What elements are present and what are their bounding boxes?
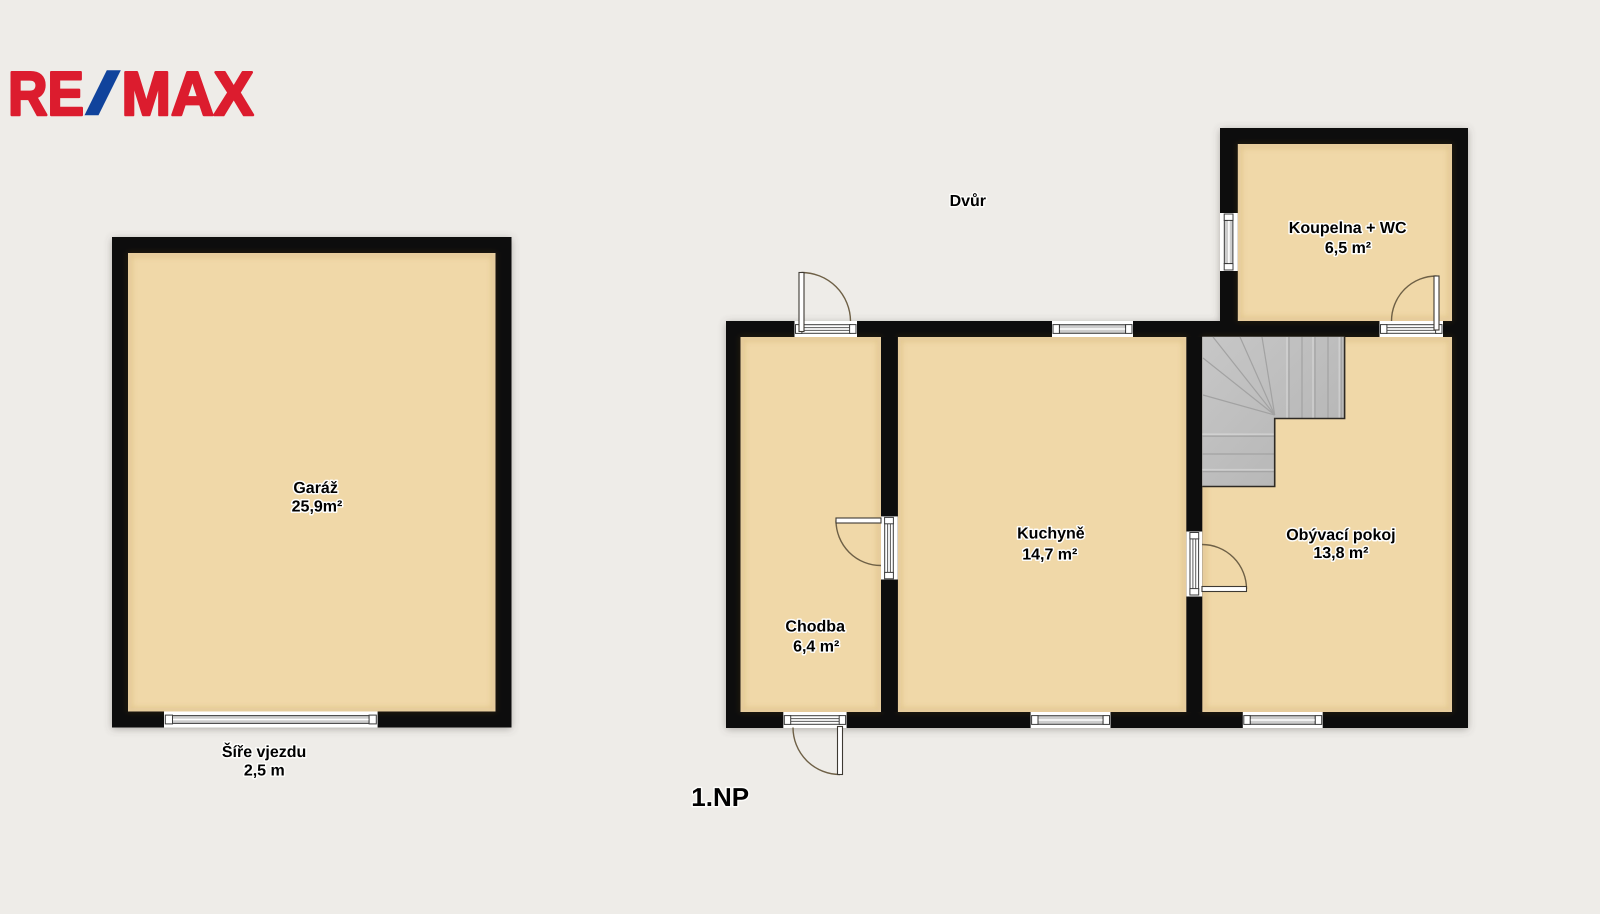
svg-text:Kuchyně: Kuchyně bbox=[1017, 526, 1085, 543]
svg-text:RE: RE bbox=[8, 60, 84, 129]
svg-text:MAX: MAX bbox=[122, 60, 254, 129]
svg-text:Šíře vjezdu: Šíře vjezdu bbox=[222, 742, 306, 761]
svg-text:6,4 m²: 6,4 m² bbox=[793, 639, 839, 656]
svg-text:2,5 m: 2,5 m bbox=[244, 763, 285, 780]
svg-text:Koupelna + WC: Koupelna + WC bbox=[1289, 220, 1407, 237]
svg-text:1.NP: 1.NP bbox=[691, 782, 749, 812]
svg-text:Chodba: Chodba bbox=[785, 618, 845, 635]
svg-text:13,8 m²: 13,8 m² bbox=[1313, 545, 1368, 562]
svg-text:6,5 m²: 6,5 m² bbox=[1325, 240, 1371, 257]
svg-text:Dvůr: Dvůr bbox=[950, 193, 986, 210]
svg-text:Garáž: Garáž bbox=[293, 480, 337, 497]
svg-text:25,9m²: 25,9m² bbox=[292, 499, 343, 516]
svg-text:14,7 m²: 14,7 m² bbox=[1022, 547, 1077, 564]
svg-text:Obývací pokoj: Obývací pokoj bbox=[1286, 527, 1395, 544]
